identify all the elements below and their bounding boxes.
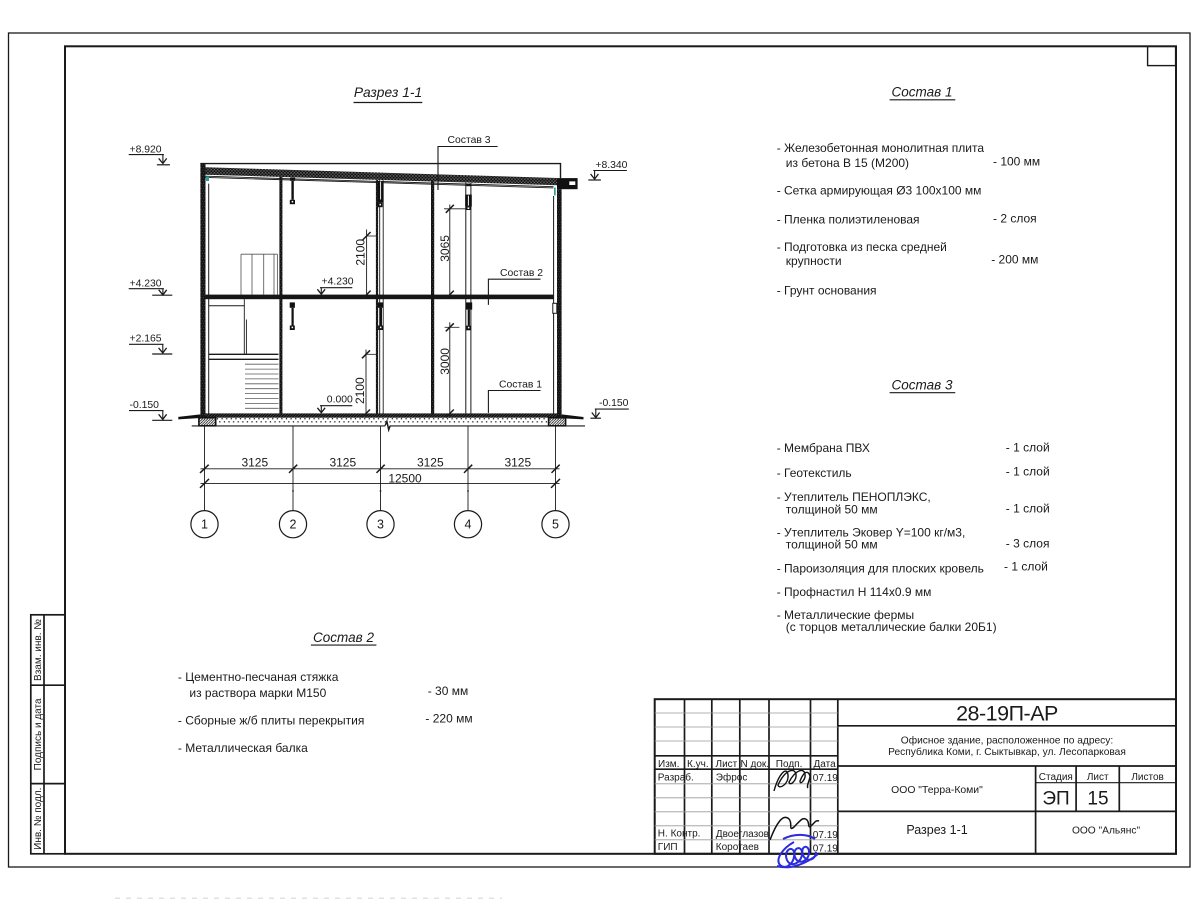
svg-text:4: 4 (465, 518, 472, 532)
svg-text:- 1 слой: - 1 слой (1006, 464, 1050, 478)
svg-text:- Металлическая балка: - Металлическая балка (178, 741, 308, 755)
svg-text:+2.165: +2.165 (130, 333, 162, 344)
svg-text:Инв. № подл.: Инв. № подл. (33, 788, 44, 850)
svg-text:+4.230: +4.230 (322, 276, 354, 287)
svg-text:- Геотекстиль: - Геотекстиль (777, 466, 852, 480)
svg-text:1: 1 (201, 518, 208, 532)
svg-text:Двоеглазов: Двоеглазов (716, 829, 769, 840)
svg-text:28-19П-АР: 28-19П-АР (956, 701, 1058, 725)
svg-text:Н. Контр.: Н. Контр. (658, 828, 701, 839)
svg-text:крупности: крупности (786, 254, 842, 268)
svg-text:3125: 3125 (417, 456, 444, 470)
svg-text:Эфрос: Эфрос (716, 771, 748, 783)
svg-text:15: 15 (1087, 788, 1108, 809)
svg-text:ООО "Альянс": ООО "Альянс" (1072, 826, 1141, 837)
svg-text:- Профнастил Н 114х0.9 мм: - Профнастил Н 114х0.9 мм (777, 585, 932, 599)
svg-text:5: 5 (552, 518, 559, 532)
svg-text:Разрез 1-1: Разрез 1-1 (906, 823, 967, 837)
svg-text:из бетона В 15 (М200): из бетона В 15 (М200) (786, 156, 909, 170)
svg-text:- Мембрана ПВХ: - Мембрана ПВХ (777, 441, 870, 455)
svg-text:Состав 2: Состав 2 (313, 630, 374, 645)
svg-text:Состав 1: Состав 1 (892, 85, 953, 100)
svg-text:Дата: Дата (814, 759, 837, 770)
svg-text:Состав 3: Состав 3 (892, 378, 953, 393)
svg-text:- Пароизоляция для плоских кро: - Пароизоляция для плоских кровель (777, 561, 984, 575)
svg-text:3125: 3125 (504, 456, 531, 470)
svg-text:Состав 3: Состав 3 (448, 135, 491, 146)
svg-text:Лист: Лист (1087, 772, 1109, 783)
svg-text:(с торцов металлические балки: (с торцов металлические балки 20Б1) (786, 620, 997, 634)
svg-text:3125: 3125 (329, 456, 356, 470)
svg-text:- Сборные ж/б плиты перекрытия: - Сборные ж/б плиты перекрытия (178, 713, 364, 727)
svg-text:Состав 1: Состав 1 (499, 379, 542, 390)
svg-text:- 30 мм: - 30 мм (428, 684, 469, 698)
svg-text:Подп.: Подп. (776, 759, 803, 770)
svg-text:- Железобетонная монолитная п: - Железобетонная монолитная плита (777, 141, 985, 155)
svg-text:Разраб.: Разраб. (658, 771, 694, 783)
svg-text:- 1 слой: - 1 слой (1004, 560, 1048, 574)
svg-text:0.000: 0.000 (327, 394, 353, 405)
svg-text:Листов: Листов (1131, 772, 1164, 783)
svg-text:3125: 3125 (241, 456, 268, 470)
svg-text:- 1 слой: - 1 слой (1006, 440, 1050, 454)
svg-text:К.уч.: К.уч. (687, 759, 709, 770)
svg-text:ООО "Терра-Коми": ООО "Терра-Коми" (891, 785, 983, 796)
svg-text:- Пленка полиэтиленовая: - Пленка полиэтиленовая (777, 212, 920, 226)
svg-text:2: 2 (290, 518, 297, 532)
svg-text:- Сетка армирующая Ø3 100х100: - Сетка армирующая Ø3 100х100 мм (777, 184, 982, 198)
svg-text:N док.: N док. (741, 759, 770, 770)
svg-text:07.19: 07.19 (813, 773, 838, 784)
svg-text:Взам. инв. №: Взам. инв. № (33, 619, 44, 681)
svg-text:Лист: Лист (716, 759, 738, 770)
svg-text:Разрез 1-1: Разрез 1-1 (354, 85, 422, 100)
svg-text:07.19: 07.19 (813, 830, 838, 841)
svg-text:толщиной 50 мм: толщиной 50 мм (786, 538, 878, 552)
svg-text:ЭП: ЭП (1042, 788, 1069, 809)
svg-text:- 2 слоя: - 2 слоя (993, 212, 1037, 226)
svg-text:Состав 2: Состав 2 (500, 268, 543, 279)
svg-text:Коротаев: Коротаев (716, 842, 759, 853)
svg-text:+8.340: +8.340 (595, 160, 627, 171)
svg-text:- Грунт основания: - Грунт основания (777, 283, 877, 297)
svg-text:Республика Коми, г. Сыктывкар,: Республика Коми, г. Сыктывкар, ул. Лесоп… (888, 746, 1126, 758)
svg-text:Изм.: Изм. (658, 759, 679, 770)
svg-text:+4.230: +4.230 (130, 278, 162, 289)
svg-text:12500: 12500 (388, 472, 422, 486)
svg-text:Офисное здание, расположенное: Офисное здание, расположенное по адресу: (901, 735, 1113, 747)
svg-text:3065: 3065 (438, 235, 452, 262)
svg-text:- 1 слой: - 1 слой (1006, 502, 1050, 516)
svg-text:- 200 мм: - 200 мм (991, 253, 1038, 267)
svg-text:- 220 мм: - 220 мм (425, 711, 472, 725)
svg-text:- Подготовка из песка средней: - Подготовка из песка средней (777, 240, 947, 254)
svg-text:- 3 слоя: - 3 слоя (1006, 537, 1050, 551)
svg-text:из раствора марки М150: из раствора марки М150 (189, 686, 326, 700)
svg-text:Стадия: Стадия (1039, 772, 1073, 783)
svg-text:3: 3 (377, 518, 384, 532)
svg-text:толщиной 50 мм: толщиной 50 мм (786, 503, 878, 517)
svg-text:- Цементно-песчаная стяжка: - Цементно-песчаная стяжка (178, 670, 339, 684)
svg-text:-0.150: -0.150 (599, 398, 629, 409)
svg-text:- 100 мм: - 100 мм (993, 154, 1040, 168)
svg-text:ГИП: ГИП (658, 842, 678, 853)
svg-text:Подпись и дата: Подпись и дата (33, 698, 44, 770)
svg-text:2100: 2100 (354, 239, 368, 266)
svg-text:-0.150: -0.150 (130, 400, 160, 411)
svg-text:3000: 3000 (438, 348, 452, 375)
svg-text:2100: 2100 (353, 377, 367, 404)
svg-text:+8.920: +8.920 (130, 144, 162, 155)
